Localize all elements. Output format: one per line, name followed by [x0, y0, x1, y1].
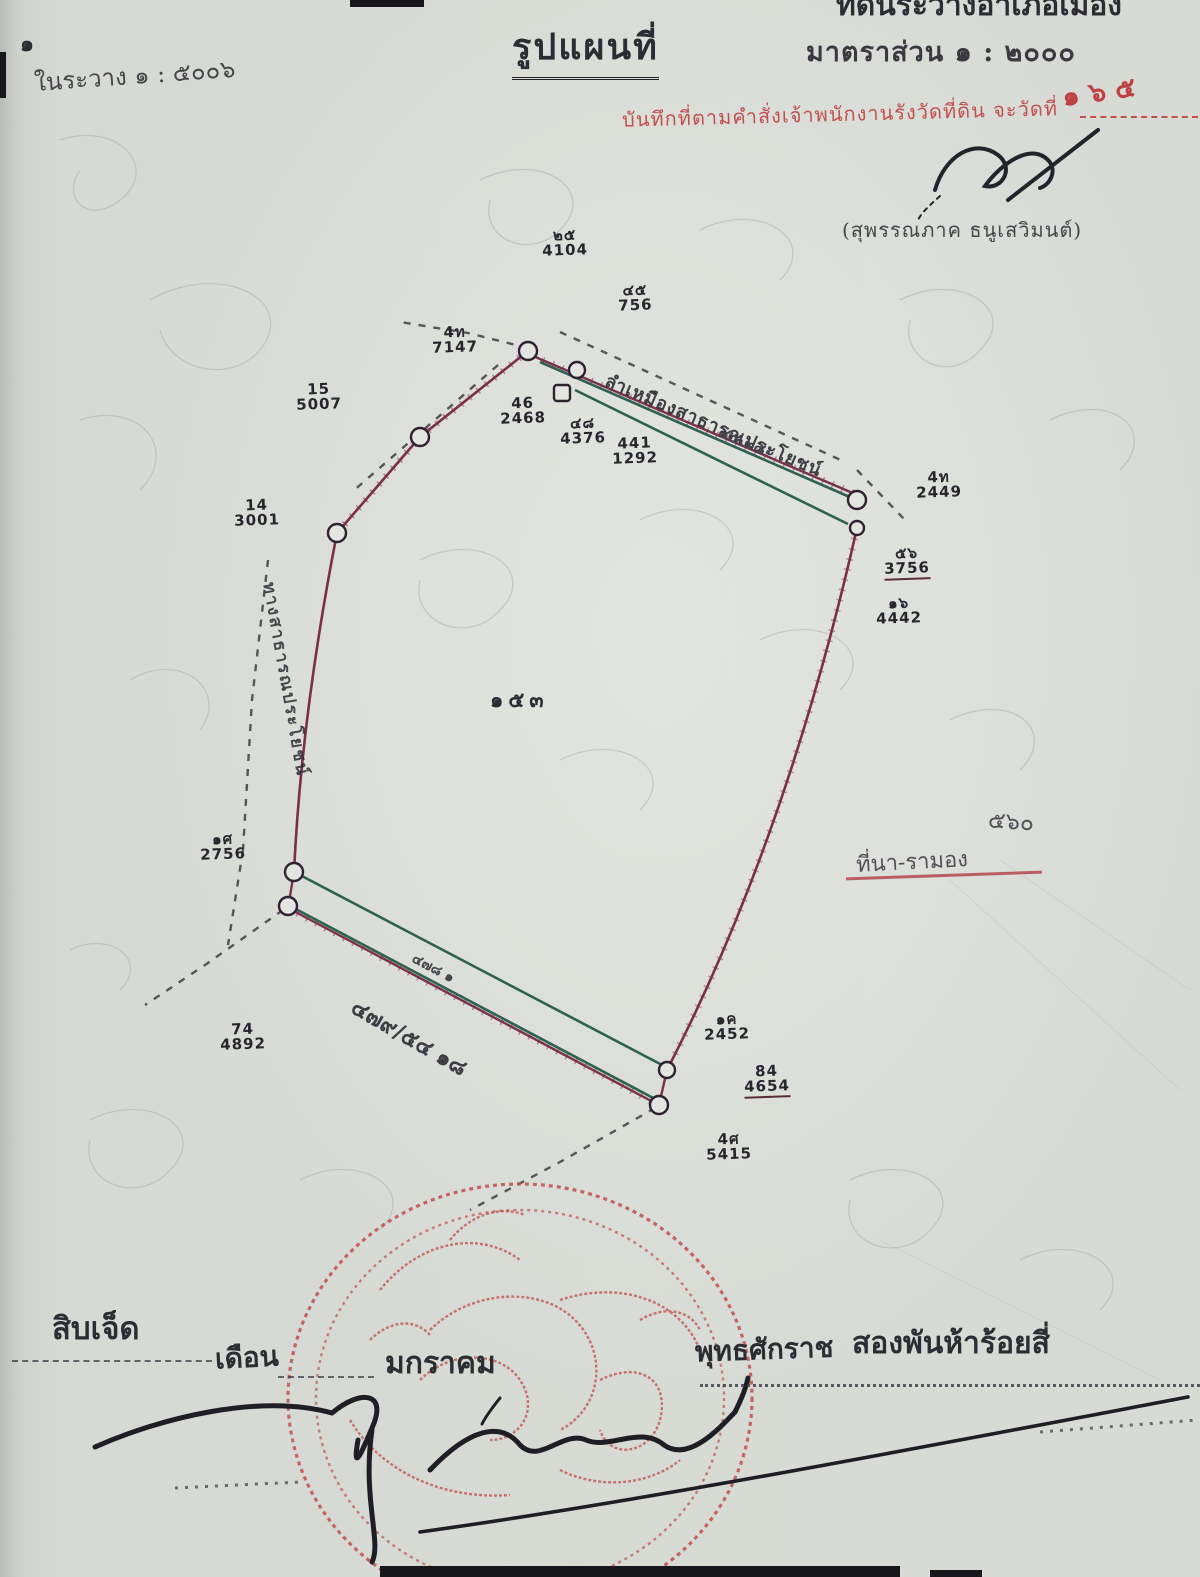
approver-name-line: (สุพรรณภาค ธนูเสวิมนต์) — [842, 214, 1082, 246]
dashed-fill-line — [12, 1360, 212, 1362]
page-title: รูปแผนที่ — [512, 18, 659, 80]
dashed-fill-line — [278, 1376, 374, 1378]
pencil-contour-scribbles — [60, 135, 1134, 1310]
marker-label: ๑ค2452 — [703, 1011, 750, 1043]
scanned-survey-document: ๑ ในระวาง ๑ : ๕๐๐๖ รูปแผนที่ ที่ดินระวาง… — [0, 0, 1200, 1577]
marker-label: ๒๕4104 — [541, 227, 588, 259]
corner-mark: ๑ — [20, 26, 34, 61]
marker-label: ๔๕756 — [617, 282, 652, 314]
canal-double-lines — [290, 362, 852, 1100]
official-signature-top — [918, 130, 1098, 220]
cut-off-header-text: ที่ดินระวางอำเภอเมืองอุดรธานี — [820, 0, 1200, 28]
marker-label: 4ท7147 — [431, 324, 478, 356]
marker-label: 4411292 — [611, 435, 658, 467]
marker-label: ๔๘4376 — [559, 415, 606, 447]
marker-label: ๕๖3756 — [883, 545, 930, 580]
red-dashed-tail — [1080, 116, 1198, 118]
date-day-word: สิบเจ็ด — [52, 1303, 140, 1353]
marker-label: 4ท2449 — [915, 469, 962, 501]
date-month-value: มกราคม — [385, 1340, 496, 1387]
marker-label: 844654 — [743, 1063, 790, 1098]
side-handwritten-number: ๕๖๐ — [987, 802, 1035, 841]
marker-label: 4ศ5415 — [705, 1131, 752, 1163]
year-in-words: สองพันห้าร้อยสี่ — [852, 1320, 1050, 1367]
date-month-label: เดือน — [214, 1334, 280, 1381]
scale-label: มาตราส่วน ๑ : ๒๐๐๐ — [806, 30, 1076, 73]
marker-label: ๑ศ2756 — [199, 831, 246, 863]
marker-label: 744892 — [219, 1021, 266, 1053]
marker-label: 155007 — [295, 381, 342, 413]
dotted-fill-line — [700, 1384, 1200, 1387]
footer-dotted-remnants — [175, 1420, 1198, 1488]
era-label: พุทธศักราช — [694, 1326, 834, 1375]
marker-label: ๑๖4442 — [875, 595, 922, 627]
marker-label: 462468 — [499, 395, 546, 427]
official-signature-bottom — [95, 1378, 1188, 1562]
pencil-streaks — [880, 860, 1190, 1380]
parcel-number: ๑๕๓ — [490, 684, 549, 717]
marker-label: 143001 — [233, 497, 280, 529]
